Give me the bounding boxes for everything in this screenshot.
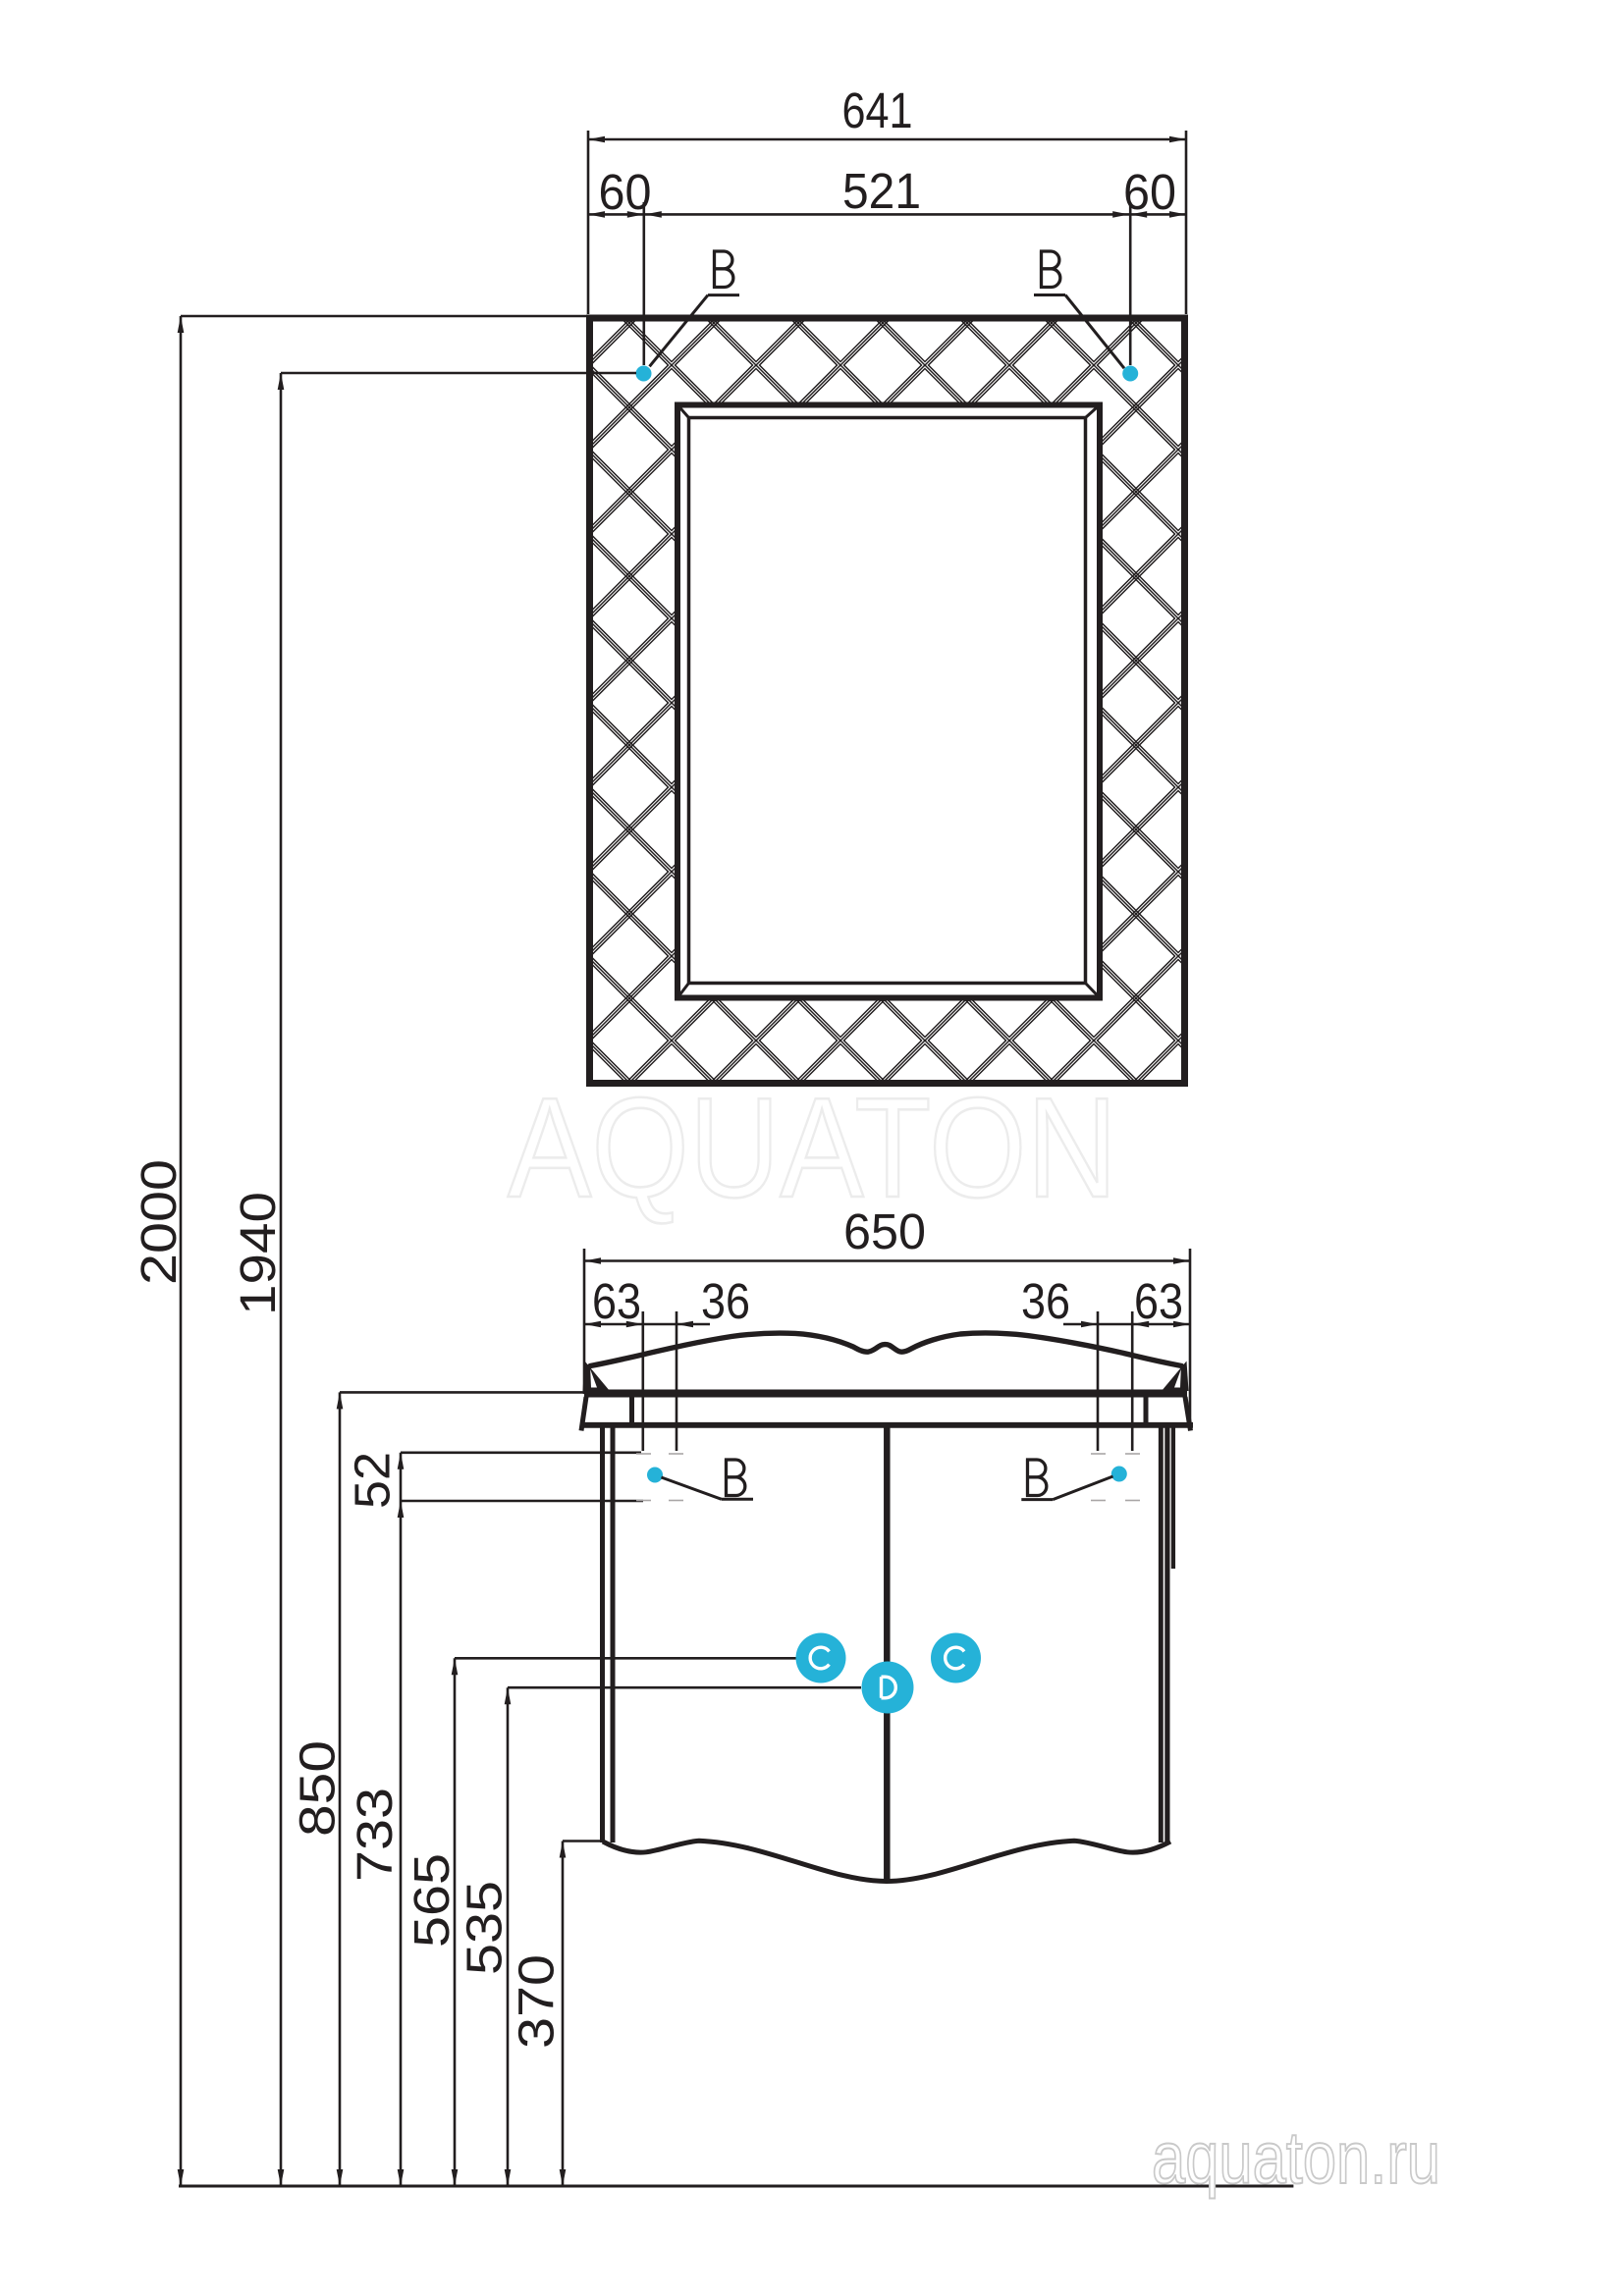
svg-text:535: 535 xyxy=(457,1881,513,1975)
svg-text:36: 36 xyxy=(1021,1273,1070,1329)
svg-text:2000: 2000 xyxy=(131,1159,187,1285)
svg-text:63: 63 xyxy=(1134,1273,1183,1329)
svg-text:521: 521 xyxy=(842,163,921,219)
svg-text:AQUATON: AQUATON xyxy=(508,1068,1117,1227)
svg-text:641: 641 xyxy=(842,82,913,138)
svg-text:650: 650 xyxy=(843,1203,926,1259)
svg-text:850: 850 xyxy=(290,1740,346,1837)
svg-text:36: 36 xyxy=(701,1273,750,1329)
svg-text:60: 60 xyxy=(599,164,652,220)
svg-text:aquaton.ru: aquaton.ru xyxy=(1152,2116,1440,2199)
svg-text:370: 370 xyxy=(509,1954,565,2049)
svg-text:733: 733 xyxy=(347,1788,403,1882)
svg-text:1940: 1940 xyxy=(230,1192,286,1315)
svg-text:63: 63 xyxy=(592,1273,641,1329)
svg-text:60: 60 xyxy=(1123,164,1176,220)
svg-text:565: 565 xyxy=(404,1853,460,1948)
svg-text:52: 52 xyxy=(345,1452,401,1509)
